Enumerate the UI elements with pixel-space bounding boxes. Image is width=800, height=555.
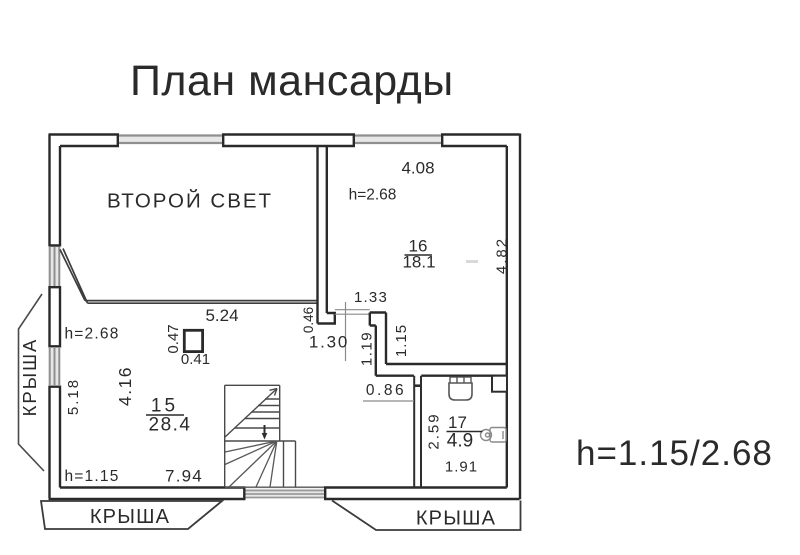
svg-text:2.59: 2.59 [426,412,443,449]
svg-text:0.47: 0.47 [165,324,182,353]
svg-text:1.15: 1.15 [393,324,410,357]
svg-text:4.82: 4.82 [494,237,511,274]
svg-text:4.08: 4.08 [401,159,434,178]
svg-text:5.18: 5.18 [65,378,82,415]
svg-text:18.1: 18.1 [402,253,435,272]
svg-text:КРЫША: КРЫША [416,508,496,530]
svg-text:5.24: 5.24 [205,306,238,325]
svg-text:1.19: 1.19 [359,331,376,366]
svg-text:План мансарды: План мансарды [130,57,454,105]
svg-text:КРЫША: КРЫША [19,338,40,417]
svg-text:0.41: 0.41 [181,351,210,368]
svg-text:h=2.68: h=2.68 [349,187,397,204]
svg-text:0.46: 0.46 [301,307,316,333]
svg-text:ВТОРОЙ СВЕТ: ВТОРОЙ СВЕТ [107,189,273,213]
svg-text:h=1.15/2.68: h=1.15/2.68 [576,434,773,473]
svg-text:15: 15 [151,396,178,417]
svg-text:h=1.15: h=1.15 [64,468,119,485]
svg-text:17: 17 [448,413,467,432]
svg-text:1.30: 1.30 [309,333,349,352]
svg-text:1.91: 1.91 [445,459,478,476]
svg-text:КРЫША: КРЫША [90,506,170,528]
svg-text:4.16: 4.16 [115,366,135,406]
svg-text:h=2.68: h=2.68 [64,326,119,343]
svg-text:0.86: 0.86 [366,382,406,399]
svg-text:28.4: 28.4 [149,415,192,436]
svg-text:4.9: 4.9 [447,431,473,452]
svg-text:7.94: 7.94 [165,467,203,486]
svg-text:1.33: 1.33 [354,289,388,306]
